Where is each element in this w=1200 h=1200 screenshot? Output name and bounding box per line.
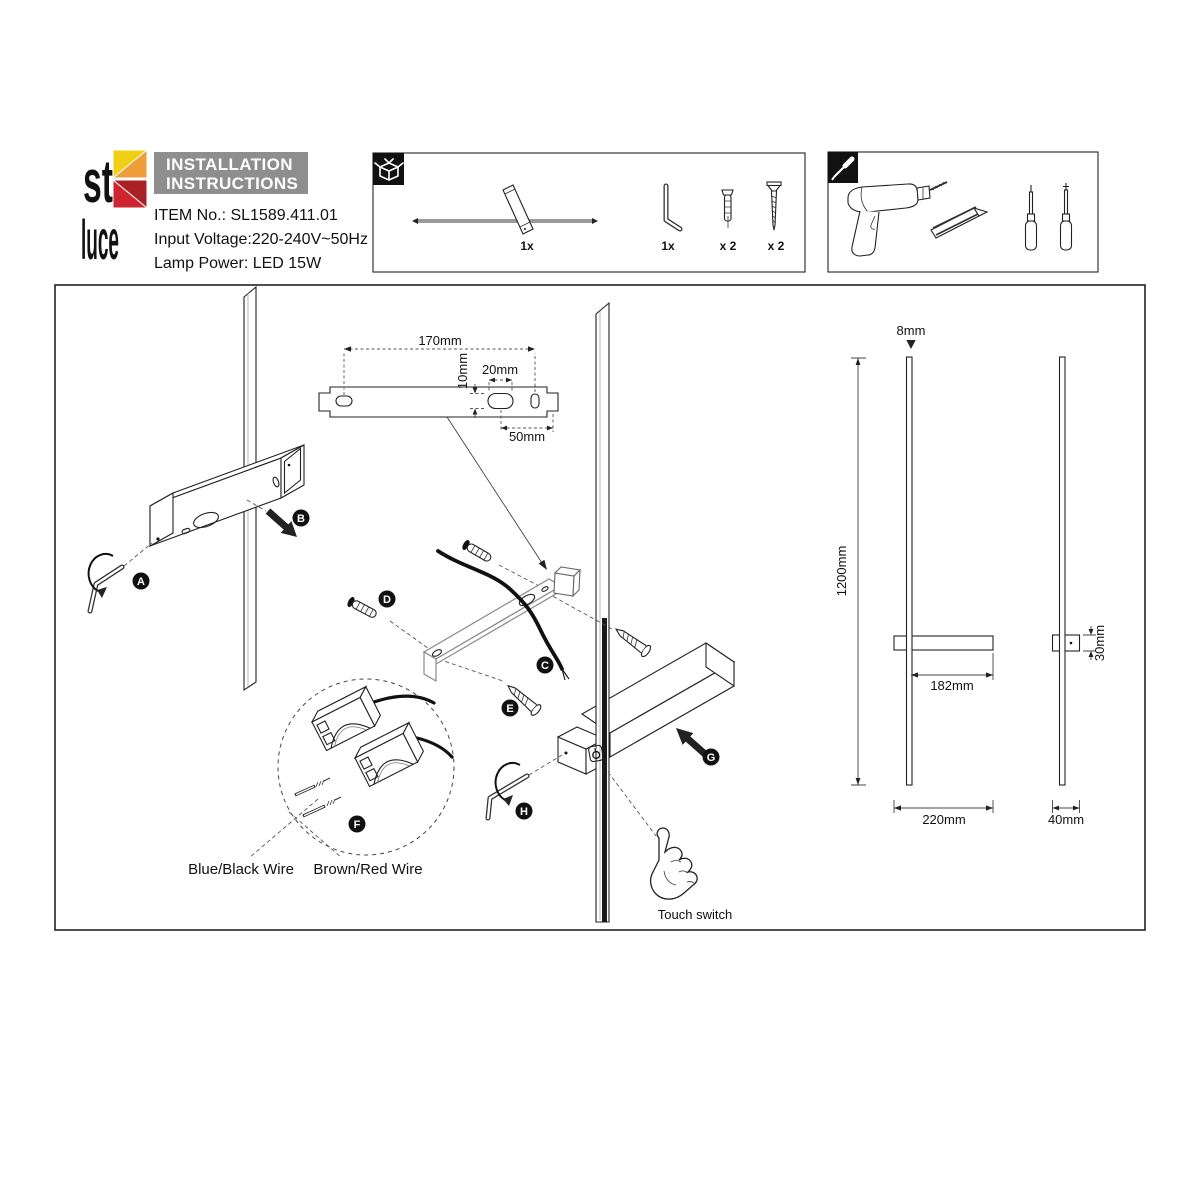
instruction-sheet: st luce INSTALLATION INSTRUCTIONS ITEM N… (0, 0, 1200, 1200)
bracket-iso-edge (436, 586, 561, 664)
svg-text:E: E (506, 703, 513, 715)
step-ab-assembly: A B (89, 287, 310, 690)
lamp-qty: 1x (520, 239, 534, 253)
dim-170mm: 170mm (418, 333, 461, 348)
side-view-rod (1060, 357, 1066, 785)
screw-qty: x 2 (768, 239, 785, 253)
svg-text:F: F (354, 819, 361, 831)
flat-screwdriver-icon (1026, 185, 1037, 250)
screw-e2 (612, 624, 652, 658)
lamp-item: 1x (412, 185, 598, 253)
dim-50mm: 50mm (509, 429, 545, 444)
wall-anchor-d2 (346, 596, 378, 620)
dim-182mm: 182mm (930, 678, 973, 693)
phillips-screwdriver-icon (1061, 183, 1072, 250)
dim-10mm: 10mm (455, 353, 470, 389)
step-badge-d: D (379, 591, 396, 608)
dim-20mm: 20mm (482, 362, 518, 377)
dimension-views: 8mm 1200mm 182mm 220mm 30mm 40mm (834, 323, 1107, 827)
title-line-1: INSTALLATION (166, 155, 293, 174)
package-contents-panel: 1x 1x x 2 x 2 (373, 153, 805, 272)
brown-red-wire-label: Brown/Red Wire (313, 861, 422, 878)
slide-arrow-g (676, 728, 707, 757)
svg-text:D: D (383, 594, 391, 606)
screw-head (768, 186, 780, 192)
title-block: INSTALLATION INSTRUCTIONS ITEM No.: SL15… (154, 152, 368, 272)
dim-40mm: 40mm (1048, 812, 1084, 827)
step-badge-e: E (502, 700, 519, 717)
step-badge-b: B (293, 510, 310, 527)
touch-pointer-dash (608, 772, 656, 836)
screw-item: x 2 (767, 182, 785, 253)
anchor-head (722, 190, 733, 195)
title-line-2: INSTRUCTIONS (166, 174, 298, 193)
wall-anchor-d1 (461, 539, 493, 564)
dim-8mm: 8mm (897, 323, 926, 338)
side-view-body (1053, 635, 1080, 651)
step-badge-a: A (133, 573, 150, 590)
lamp-bar (417, 219, 593, 223)
pencil-icon (931, 207, 987, 238)
bracket-cube-front (554, 573, 574, 596)
tools-panel (828, 152, 1098, 272)
slide-arrow-b (266, 508, 297, 537)
brand-logo: st luce (81, 148, 147, 271)
lamp-bar-right-tip (592, 218, 598, 224)
bracket-iso-top (424, 579, 561, 659)
mounting-bracket-plate (319, 387, 558, 417)
leader-brown-red (289, 812, 342, 858)
dim-220mm: 220mm (922, 812, 965, 827)
touch-switch-label: Touch switch (658, 907, 732, 922)
logo-word-bottom: luce (81, 208, 119, 271)
blue-black-wire-label: Blue/Black Wire (188, 861, 294, 878)
pointing-hand-icon (651, 828, 698, 899)
step-badge-g: G (703, 749, 720, 766)
input-voltage: Input Voltage:220-240V~50Hz (154, 231, 368, 248)
lamp-power: Lamp Power: LED 15W (154, 255, 322, 272)
hex-key-qty: 1x (661, 239, 675, 253)
set-screw-dot (156, 537, 159, 540)
step-badge-f: F (349, 816, 366, 833)
step-badge-h: H (516, 803, 533, 820)
drill-icon (848, 182, 947, 256)
svg-text:G: G (707, 752, 716, 764)
fixture-set-screw-dot (565, 752, 568, 755)
step-badge-c: C (537, 657, 554, 674)
lamp-led-strip (602, 618, 607, 922)
svg-text:A: A (137, 576, 145, 588)
hex-key-item: 1x (661, 186, 680, 253)
logo-word-top: st (83, 148, 113, 215)
dim-30mm: 30mm (1092, 625, 1107, 661)
wiring-detail: F Blue/Black Wire Brown/Red Wire (188, 679, 454, 878)
bracket-dimension-drawing: 170mm 10mm 20mm 50mm (319, 333, 558, 570)
item-number: ITEM No.: SL1589.411.01 (154, 207, 338, 224)
dim-1200mm: 1200mm (834, 546, 849, 597)
wall-anchor-item: x 2 (720, 190, 737, 253)
lamp-bar-left-tip (412, 218, 418, 224)
front-view-rod (907, 357, 913, 785)
logo-mark-icon (113, 150, 147, 208)
instruction-drawing: st luce INSTALLATION INSTRUCTIONS ITEM N… (0, 0, 1200, 1200)
stripped-wire-1 (295, 778, 330, 795)
svg-text:C: C (541, 660, 549, 672)
lamp-rod-center (596, 303, 609, 922)
package-panel-border (373, 153, 805, 272)
anchor-qty: x 2 (720, 239, 737, 253)
dim-8mm-pointer (906, 340, 915, 349)
svg-text:H: H (520, 806, 528, 818)
svg-text:B: B (297, 513, 305, 525)
stripped-wire-2 (303, 797, 341, 816)
